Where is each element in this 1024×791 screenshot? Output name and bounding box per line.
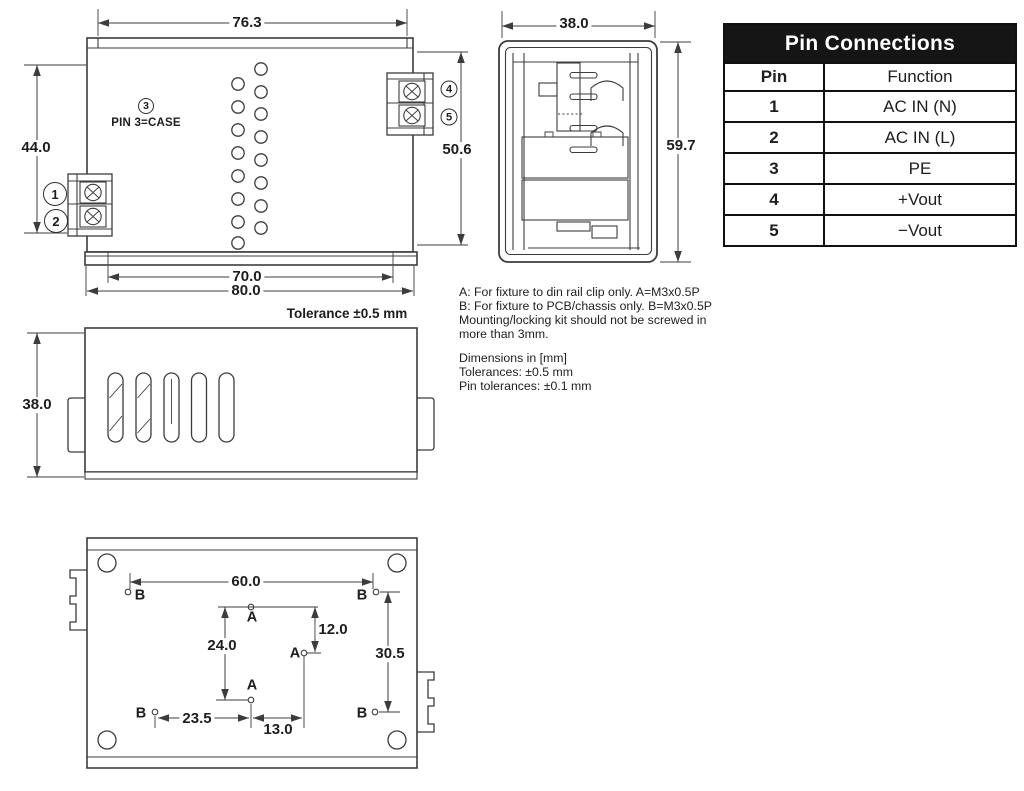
top-body <box>85 328 417 472</box>
hole-label-a: A <box>246 610 258 625</box>
vent-hole <box>232 216 244 228</box>
fixture-notes: A: For fixture to din rail clip only. A=… <box>459 285 759 341</box>
corner-hole <box>98 554 116 572</box>
bottom-right-bracket <box>417 672 434 732</box>
top-vent-view <box>27 328 434 479</box>
right-terminal-block <box>387 73 433 135</box>
front-dim-right-height: 50.6 <box>439 142 474 158</box>
front-dim-left-height: 44.0 <box>18 140 53 156</box>
vent-hole <box>255 177 267 189</box>
vent-hole <box>232 124 244 136</box>
note-fixture-b: B: For fixture to PCB/chassis only. B=M3… <box>459 299 759 313</box>
note-tolerances: Tolerances: ±0.5 mm <box>459 365 759 379</box>
side-dim-width: 38.0 <box>556 16 591 32</box>
tolerance-note: Tolerance ±0.5 mm <box>284 307 410 321</box>
top-left-tab <box>68 398 85 452</box>
vent-hole <box>255 131 267 143</box>
front-body <box>87 38 413 252</box>
top-dim-height: 38.0 <box>19 397 54 413</box>
vent-hole <box>255 154 267 166</box>
hole-label-b: B <box>135 706 147 721</box>
vent-hole <box>232 147 244 159</box>
top-right-tab <box>417 398 434 450</box>
bottom-dim-24: 24.0 <box>204 638 239 654</box>
mount-hole-b <box>373 589 379 595</box>
pin-table-title: Pin Connections <box>725 25 1015 62</box>
function-column-header: Function <box>823 64 1015 90</box>
vent-hole <box>255 86 267 98</box>
vent-hole <box>255 108 267 120</box>
vent-hole <box>255 63 267 75</box>
side-body-outline <box>499 41 657 262</box>
front-dim-bottom-outer: 80.0 <box>228 283 263 299</box>
hole-label-b: B <box>356 588 368 603</box>
mount-hole-b <box>125 589 131 595</box>
bottom-dim-60: 60.0 <box>228 574 263 590</box>
pin-number: 1 <box>725 92 823 121</box>
pin-function: −Vout <box>823 216 1015 245</box>
vent-hole <box>255 222 267 234</box>
note-dimensions: Dimensions in [mm] <box>459 351 759 365</box>
note-pin-tolerances: Pin tolerances: ±0.1 mm <box>459 379 759 393</box>
pin-table-row: 2 AC IN (L) <box>725 121 1015 152</box>
pin-connections-table: Pin Connections Pin Function 1 AC IN (N)… <box>723 23 1017 247</box>
tolerance-notes: Dimensions in [mm] Tolerances: ±0.5 mm P… <box>459 351 759 393</box>
pin-table-row: 4 +Vout <box>725 183 1015 214</box>
mount-hole-a <box>248 697 254 703</box>
side-dim-height: 59.7 <box>663 138 698 154</box>
bottom-left-bracket <box>70 570 87 630</box>
side-section-view <box>499 11 691 262</box>
pin-column-header: Pin <box>725 64 823 90</box>
mount-hole-b <box>372 709 378 715</box>
pin-table-row: 1 AC IN (N) <box>725 90 1015 121</box>
pin-function: AC IN (L) <box>823 123 1015 152</box>
mount-hole-b <box>152 709 158 715</box>
bottom-dim-23-5: 23.5 <box>179 711 214 727</box>
hole-label-b: B <box>356 706 368 721</box>
pin-number: 2 <box>725 123 823 152</box>
pin-1-marker: 1 <box>43 182 67 206</box>
corner-hole <box>388 731 406 749</box>
bottom-dim-12: 12.0 <box>315 622 350 638</box>
pin-number: 3 <box>725 154 823 183</box>
pin-3-marker: 3 <box>138 98 154 114</box>
hole-label-a: A <box>289 646 301 661</box>
front-bottom-flange <box>85 252 417 265</box>
vent-hole <box>255 200 267 212</box>
pin-table-row: 5 −Vout <box>725 214 1015 245</box>
pin-4-marker: 4 <box>441 81 458 98</box>
vent-hole <box>232 170 244 182</box>
bottom-dim-30-5: 30.5 <box>372 646 407 662</box>
corner-hole <box>98 731 116 749</box>
corner-hole <box>388 554 406 572</box>
note-mounting-2: more than 3mm. <box>459 327 759 341</box>
pin3-case-label: PIN 3=CASE <box>111 117 180 129</box>
pin-function: +Vout <box>823 185 1015 214</box>
pin-function: PE <box>823 154 1015 183</box>
left-terminal-block <box>68 174 112 236</box>
mechanical-drawing-page: 76.3 44.0 50.6 70.0 80.0 38.0 59.7 38.0 … <box>0 0 1024 791</box>
hole-label-b: B <box>134 588 146 603</box>
pin-5-marker: 5 <box>441 109 458 126</box>
pin-table-header-row: Pin Function <box>725 62 1015 90</box>
pin-function: AC IN (N) <box>823 92 1015 121</box>
top-flange <box>85 472 417 479</box>
vent-hole <box>232 101 244 113</box>
front-dim-top-width: 76.3 <box>229 15 264 31</box>
hole-label-a: A <box>246 678 258 693</box>
pin-number: 5 <box>725 216 823 245</box>
bottom-dim-13: 13.0 <box>260 722 295 738</box>
note-fixture-a: A: For fixture to din rail clip only. A=… <box>459 285 759 299</box>
pin-2-marker: 2 <box>44 209 68 233</box>
pin-number: 4 <box>725 185 823 214</box>
vent-hole <box>232 78 244 90</box>
mount-hole-a <box>301 650 307 656</box>
vent-hole <box>232 237 244 249</box>
note-mounting-1: Mounting/locking kit should not be screw… <box>459 313 759 327</box>
vent-hole <box>232 193 244 205</box>
front-view <box>24 9 468 296</box>
pin-table-row: 3 PE <box>725 152 1015 183</box>
